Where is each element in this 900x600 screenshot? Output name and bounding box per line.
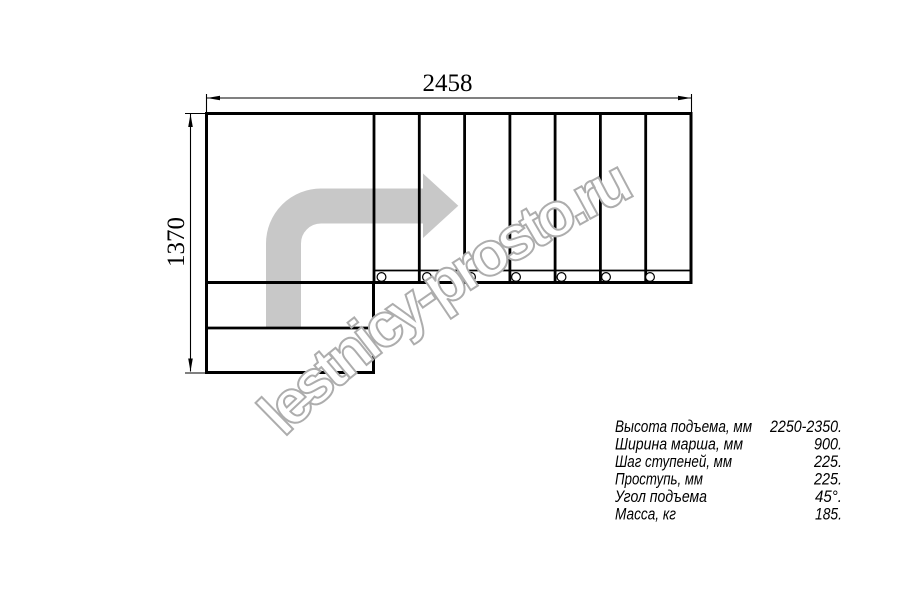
svg-text:Высота подъема, мм: Высота подъема, мм <box>615 417 752 436</box>
svg-text:1370: 1370 <box>163 217 190 267</box>
svg-text:Масса, кг: Масса, кг <box>615 505 676 524</box>
svg-text:45°.: 45°. <box>815 487 842 506</box>
svg-text:2458: 2458 <box>423 70 473 97</box>
svg-text:900.: 900. <box>814 435 842 454</box>
svg-text:Проступь, мм: Проступь, мм <box>615 470 703 489</box>
svg-text:225.: 225. <box>813 452 842 471</box>
svg-text:185.: 185. <box>815 505 842 524</box>
svg-text:Ширина марша, мм: Ширина марша, мм <box>615 435 743 454</box>
svg-text:2250-2350.: 2250-2350. <box>769 417 842 436</box>
svg-text:Шаг ступеней, мм: Шаг ступеней, мм <box>615 452 732 471</box>
svg-text:Угол подъема: Угол подъема <box>614 487 707 506</box>
svg-text:225.: 225. <box>813 470 842 489</box>
